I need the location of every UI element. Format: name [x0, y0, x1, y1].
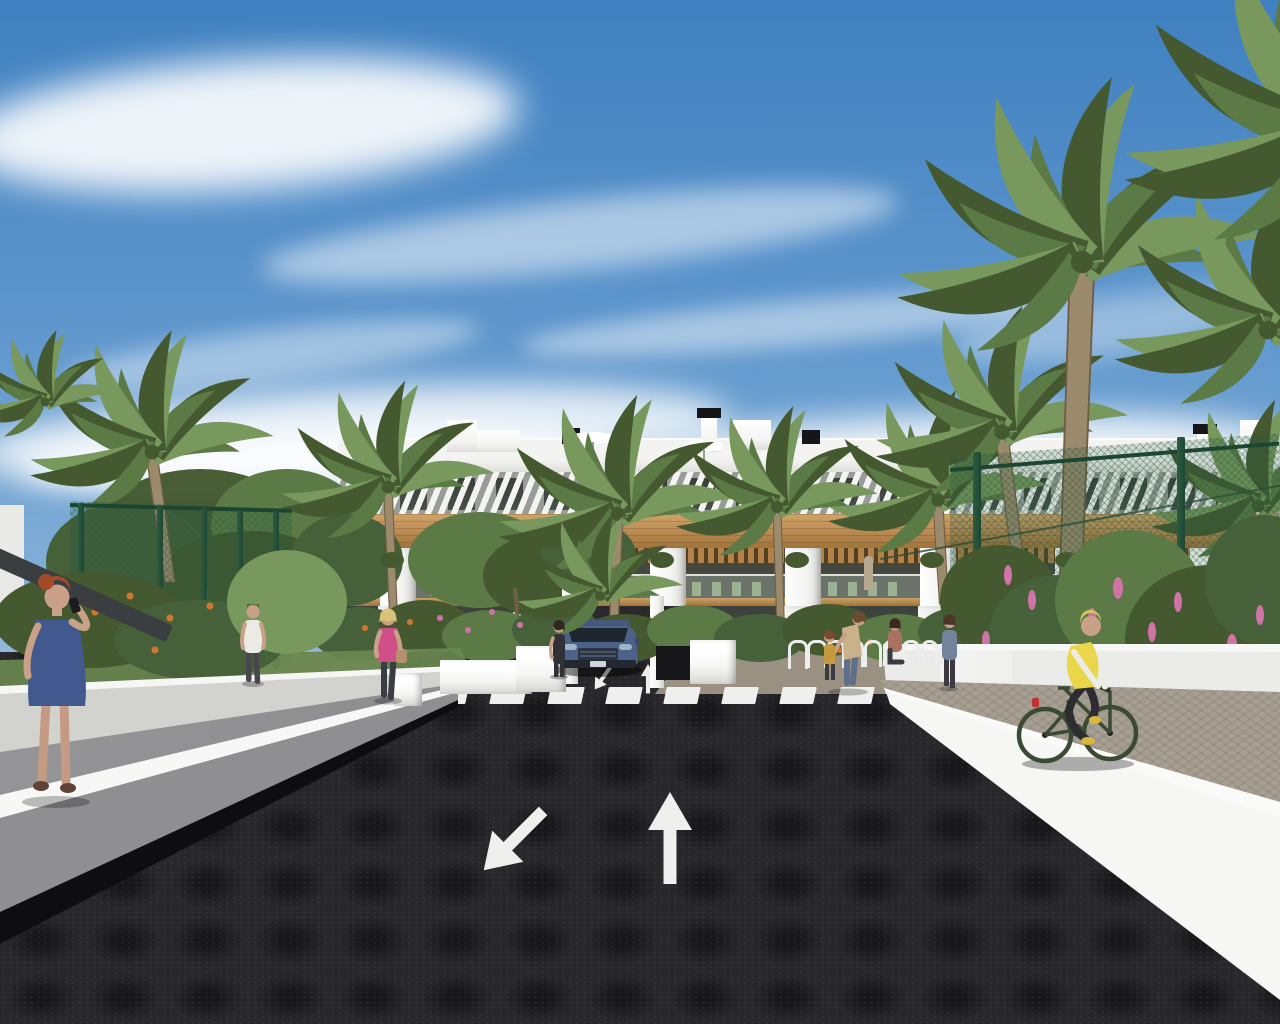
woman-tan-with-child — [818, 604, 874, 696]
cyclist — [998, 596, 1148, 774]
woman-by-car — [546, 618, 572, 680]
tan-top — [842, 624, 862, 660]
foreground-vegetation — [0, 0, 1280, 1024]
bike-rack-loop — [788, 640, 808, 669]
license-plate — [590, 661, 606, 667]
phone — [68, 597, 81, 614]
dark-jumpsuit — [553, 634, 565, 664]
grille — [578, 648, 618, 660]
white-wall-segment — [690, 640, 736, 684]
child — [824, 630, 835, 680]
yellow-shoe — [1089, 716, 1101, 724]
person-denim — [936, 612, 962, 692]
man-white-shirt — [238, 600, 268, 688]
headlight — [619, 644, 632, 650]
woman-blue-dress — [2, 574, 112, 814]
denim-jacket — [942, 630, 957, 660]
woman-leaning — [834, 611, 866, 686]
woman-pink-top — [366, 606, 410, 706]
yellow-shoe — [1081, 737, 1095, 745]
seated-woman — [880, 618, 910, 670]
tail-light — [1032, 698, 1039, 707]
architectural-rendering — [0, 0, 1280, 1024]
blonde-hair — [379, 608, 397, 622]
mustard-jacket — [824, 644, 835, 666]
utility-box — [656, 646, 692, 680]
handbag — [396, 650, 407, 663]
windshield — [568, 628, 628, 642]
